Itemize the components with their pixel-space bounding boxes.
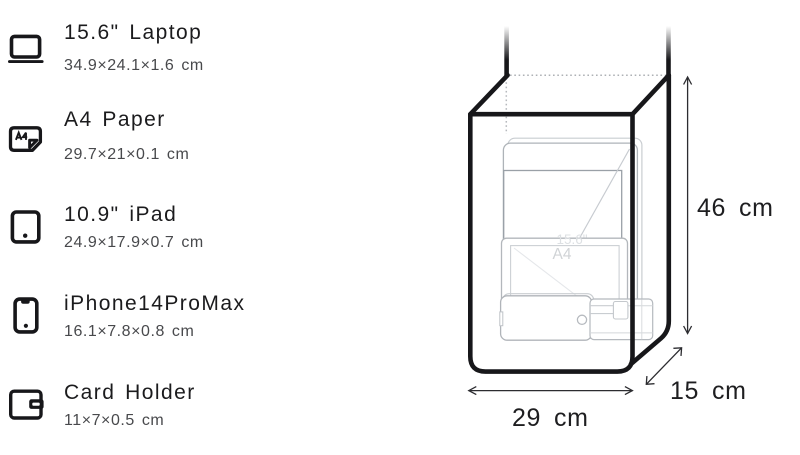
svg-text:15.6": 15.6" — [557, 232, 588, 247]
svg-text:A4: A4 — [553, 246, 572, 263]
